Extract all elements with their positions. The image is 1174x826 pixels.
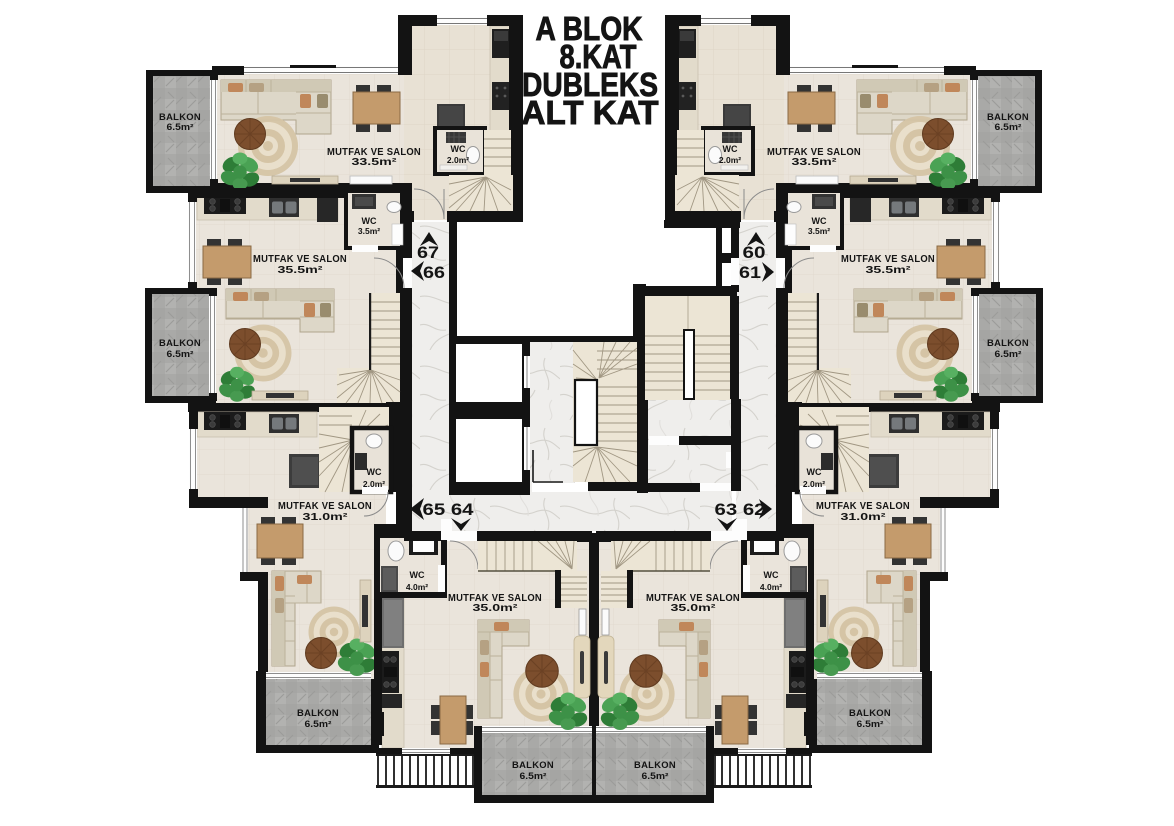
svg-text:6.5m²: 6.5m² [995,349,1022,359]
svg-text:WC: WC [451,144,466,154]
svg-text:6.5m²: 6.5m² [642,771,669,781]
svg-text:65 64: 65 64 [423,500,475,519]
svg-text:35.0m²: 35.0m² [473,602,519,614]
svg-text:BALKON: BALKON [159,338,201,349]
svg-text:61: 61 [739,263,761,282]
svg-text:60: 60 [743,243,766,262]
svg-text:WC: WC [812,216,827,226]
svg-text:BALKON: BALKON [987,338,1029,349]
svg-text:4.0m²: 4.0m² [760,582,782,592]
svg-text:63 62: 63 62 [715,500,766,519]
svg-text:2.0m²: 2.0m² [363,479,385,489]
svg-text:BALKON: BALKON [297,708,339,719]
svg-text:35.5m²: 35.5m² [278,264,324,276]
svg-text:6.5m²: 6.5m² [167,122,194,132]
svg-text:4.0m²: 4.0m² [406,582,428,592]
svg-text:67: 67 [417,243,439,262]
svg-text:3.5m²: 3.5m² [358,226,380,236]
svg-text:66: 66 [423,263,445,282]
svg-text:WC: WC [362,216,377,226]
svg-text:WC: WC [764,570,779,580]
svg-text:35.0m²: 35.0m² [671,602,717,614]
svg-text:WC: WC [723,144,738,154]
svg-text:31.0m²: 31.0m² [841,511,887,523]
svg-text:WC: WC [807,467,822,477]
svg-text:2.0m²: 2.0m² [719,155,741,165]
svg-text:6.5m²: 6.5m² [520,771,547,781]
svg-text:BALKON: BALKON [512,760,554,771]
svg-text:6.5m²: 6.5m² [857,719,884,729]
svg-text:WC: WC [410,570,425,580]
svg-text:6.5m²: 6.5m² [305,719,332,729]
svg-text:2.0m²: 2.0m² [803,479,825,489]
svg-text:BALKON: BALKON [849,708,891,719]
svg-text:2.0m²: 2.0m² [447,155,469,165]
svg-text:BALKON: BALKON [634,760,676,771]
svg-text:ALT KAT: ALT KAT [522,94,659,131]
svg-text:6.5m²: 6.5m² [995,122,1022,132]
svg-text:33.5m²: 33.5m² [792,156,838,168]
svg-text:WC: WC [367,467,382,477]
svg-text:31.0m²: 31.0m² [303,511,349,523]
svg-text:33.5m²: 33.5m² [352,156,398,168]
svg-text:6.5m²: 6.5m² [167,349,194,359]
svg-text:35.5m²: 35.5m² [866,264,912,276]
svg-text:3.5m²: 3.5m² [808,226,830,236]
